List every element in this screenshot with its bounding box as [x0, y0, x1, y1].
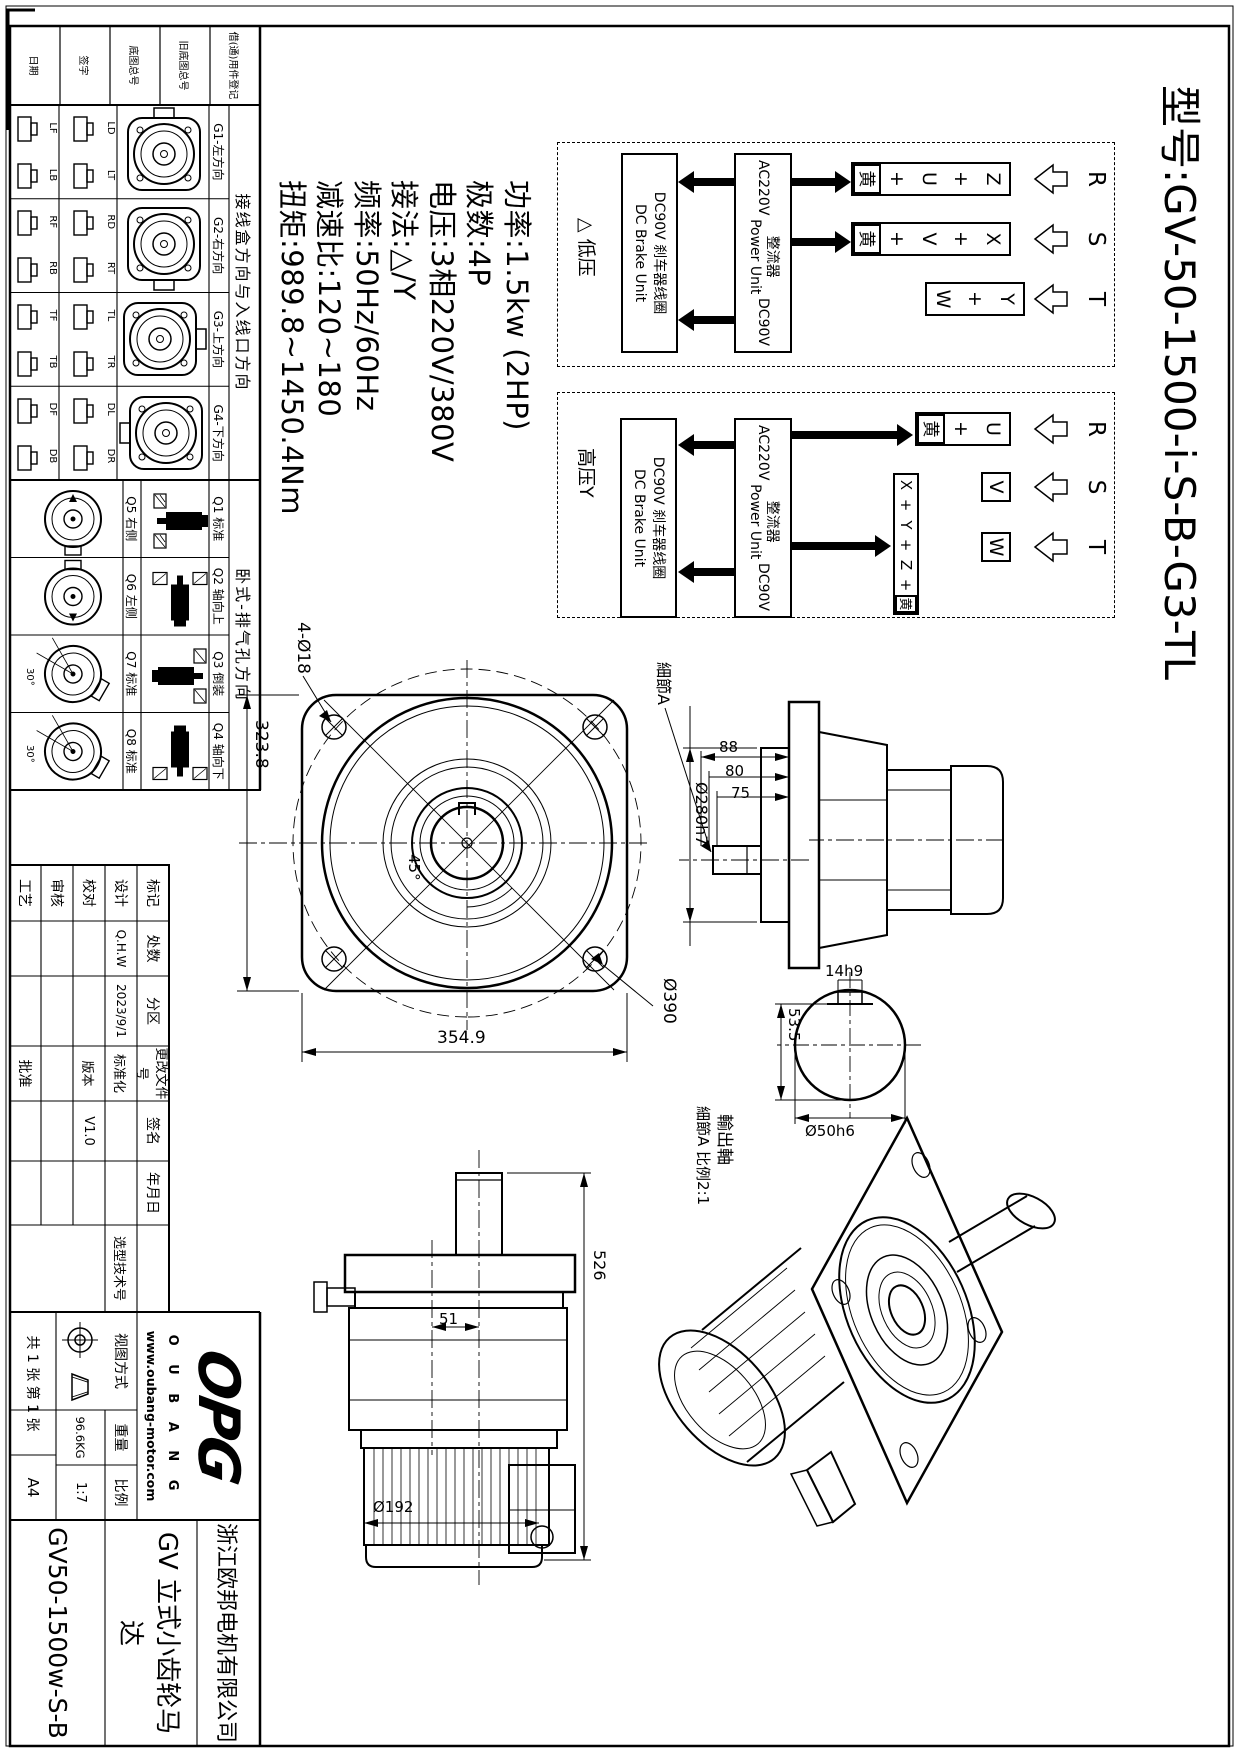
scale-label: 比例: [105, 1465, 137, 1520]
paper-size: A4: [10, 1455, 56, 1520]
q4-label: Q4 轴向下: [209, 713, 229, 791]
phase-t: T: [1083, 532, 1109, 562]
rev-h-mark: 标记: [137, 865, 169, 921]
g1-sub-a: LD: [105, 105, 116, 151]
g3-label: G3-上方向: [209, 293, 229, 387]
row-audit: 审核: [41, 865, 73, 921]
spec-poles: 极数:4P: [460, 180, 498, 515]
g4-motor-icon: [118, 387, 208, 479]
weight-value: 96.6KG: [56, 1410, 105, 1465]
spec-power: 功率:1.5kw (2HP): [498, 180, 536, 515]
g3-sub-b: TR: [105, 339, 116, 385]
q6-label: Q6 左侧: [123, 558, 141, 636]
reg-row-borrow: 借(通)用件登记: [210, 26, 260, 105]
rectifier-dc: DC90V: [755, 298, 771, 346]
terminal-strip-yw: Y+ W: [925, 282, 1025, 316]
rectifier-box-high: AC220V 整流器 Power Unit DC90V: [734, 418, 792, 618]
terminal-strip-u: U+ 黄: [915, 412, 1011, 446]
hmount-motor-icons: [141, 480, 209, 790]
version-value: V1.0: [73, 1101, 105, 1161]
dim-88: 88: [719, 738, 738, 756]
dim-14h9: 14h9: [825, 962, 863, 980]
g2-motor-icon: [118, 200, 208, 292]
g2-sub-a: RD: [105, 199, 116, 245]
mini-motor-icons-row1: [59, 105, 101, 480]
junction-bump-right: [154, 280, 174, 290]
q1-label: Q1 标准: [209, 480, 229, 558]
g1-sub-d: LB: [47, 152, 58, 198]
q3-label: Q3 倒装: [209, 635, 229, 713]
junction-table-header: 接线盒方向与入线口方向: [229, 105, 260, 480]
view-mode-label: 视图方式: [105, 1312, 137, 1410]
terminal-strip-xyz: X+ Y+ Z+ 黄: [893, 473, 919, 615]
q8-label: Q8 标准: [123, 713, 141, 791]
g2-sub-d: RB: [47, 245, 58, 291]
rev-h-date: 年月日: [137, 1161, 169, 1225]
dim-50h6: Ø50h6: [805, 1122, 855, 1140]
weight-label: 重量: [105, 1410, 137, 1465]
g1-sub-c: LF: [47, 105, 58, 151]
shaft-detail-view: [775, 972, 921, 1124]
drawing-number: GV50-1500w-S-B: [10, 1520, 105, 1746]
scale-value: 1:7: [56, 1465, 105, 1520]
spec-voltage: 电压:3相220V/380V: [423, 180, 461, 515]
reg-row-old-no: 旧底图总号: [160, 26, 210, 105]
phase-s: S: [1083, 472, 1109, 502]
dim-53-5: 53.5: [785, 1008, 803, 1041]
sheet-count: 共 1 张 第 1 张: [10, 1312, 56, 1455]
rectifier-box-low: AC220V 整流器 Power Unit DC90V: [734, 153, 792, 353]
brake-en: DC Brake Unit: [631, 204, 650, 302]
dim-45deg: 45°: [405, 854, 423, 881]
spec-torque: 扭矩:989.8~1450.4Nm: [273, 180, 311, 515]
g3-motor-icon: [118, 293, 208, 385]
q5-label: Q5 右侧: [123, 480, 141, 558]
q7-label: Q7 标准: [123, 635, 141, 713]
spec-wiring: 接法:△/Y: [385, 180, 423, 515]
exhaust-table-header: 卧式-排气孔方向: [229, 480, 260, 790]
rectifier-ac: AC220V: [755, 425, 771, 480]
drawing-sheet: 型号:GV-50-1500-i-S-B-G3-TL R S T R S T Z+…: [0, 0, 1239, 1752]
junction-bump-bottom: [120, 423, 130, 443]
brand-name: O U B A N G: [163, 1312, 183, 1520]
q7-angle: 30°: [24, 668, 35, 686]
g2-sub-b: RT: [105, 245, 116, 291]
sel-tech-no-label: 选型技术号: [105, 1225, 137, 1312]
dim-bolt-circle: Ø390: [659, 978, 679, 1024]
g4-sub-d: DB: [47, 433, 58, 479]
horizontal-view: [314, 1150, 591, 1585]
design-date: 2023/9/1: [105, 976, 137, 1046]
dim-80: 80: [725, 762, 744, 780]
motor-fins: [374, 1448, 536, 1545]
row-version: 版本: [73, 1046, 105, 1101]
dim-arrowheads: [243, 695, 627, 1056]
g4-sub-c: DF: [47, 386, 58, 432]
phase-t: T: [1083, 284, 1109, 314]
g4-sub-b: DR: [105, 433, 116, 479]
rev-h-zone: 分区: [137, 976, 169, 1046]
detail-a-scale-label: 細節A 比例2:1: [693, 1106, 714, 1205]
terminal-w: W: [981, 532, 1011, 562]
terminal-strip-zu: Z+ U+ 黄: [851, 162, 1011, 196]
output-shaft-label: 輸出軸: [714, 1114, 739, 1165]
high-voltage-label: 高压Y: [574, 448, 601, 498]
rev-h-docno: 更改文件号: [137, 1046, 169, 1101]
brake-unit-box-low: DC90V 刹车器线圈 DC Brake Unit: [621, 153, 678, 353]
side-view: [665, 702, 1004, 968]
spec-block: 功率:1.5kw (2HP) 极数:4P 电压:3相220V/380V 接法:△…: [273, 180, 536, 515]
terminal-v: V: [981, 472, 1011, 502]
junction-bump-left: [154, 108, 174, 118]
junction-bump-top: [196, 329, 206, 349]
mini-motor-icons-row2: [9, 105, 43, 480]
row-standardize: 标准化: [105, 1046, 137, 1101]
brake-cn: DC90V 刹车器线圈: [650, 192, 669, 314]
landscape-stage: 型号:GV-50-1500-i-S-B-G3-TL R S T R S T Z+…: [0, 0, 1239, 1752]
spec-ratio: 减速比:120~180: [310, 180, 348, 515]
reg-row-date: 日期: [10, 26, 60, 105]
brand-website: www.oubang-motor.com: [141, 1312, 163, 1520]
round-motor-icons: [10, 480, 123, 790]
rectifier-cn: 整流器: [763, 484, 780, 559]
g4-label: G4-下方向: [209, 386, 229, 480]
brake-en: DC Brake Unit: [630, 469, 649, 567]
g1-motor-icon: [118, 106, 208, 198]
row-design: 设计: [105, 865, 137, 921]
g2-label: G2-右方向: [209, 199, 229, 293]
dim-526: 526: [590, 1250, 609, 1281]
brake-cn: DC90V 刹车器线圈: [649, 457, 668, 579]
row-process: 工艺: [10, 865, 41, 921]
phase-r: R: [1083, 164, 1109, 194]
drawing-model-title: 型号:GV-50-1500-i-S-B-G3-TL: [1152, 85, 1213, 680]
q2-label: Q2 轴向上: [209, 558, 229, 636]
rectifier-en: Power Unit: [746, 484, 763, 559]
q8-angle: 30°: [24, 745, 35, 763]
g3-sub-a: TL: [105, 293, 116, 339]
front-view: [237, 660, 653, 1062]
g1-sub-b: LT: [105, 152, 116, 198]
dim-354-9: 354.9: [437, 1028, 486, 1048]
g4-sub-a: DL: [105, 386, 116, 432]
detail-a-callout: 細節A: [653, 662, 677, 705]
rectifier-en: Power Unit: [746, 219, 763, 294]
dim-75: 75: [731, 784, 750, 802]
reg-row-sign: 签字: [60, 26, 110, 105]
rectifier-ac: AC220V: [755, 160, 771, 215]
phase-s: S: [1083, 224, 1109, 254]
phase-r: R: [1083, 414, 1109, 444]
g3-sub-c: TF: [47, 293, 58, 339]
g3-sub-d: TB: [47, 339, 58, 385]
brand-logo: OPG: [185, 1306, 251, 1526]
row-check: 校对: [73, 865, 105, 921]
dim-51: 51: [439, 1310, 458, 1328]
reg-row-base-no: 底图总号: [110, 26, 160, 105]
dim-192: Ø192: [373, 1498, 413, 1516]
rev-h-count: 处数: [137, 921, 169, 976]
rev-h-sign: 签名: [137, 1101, 169, 1161]
rectifier-cn: 整流器: [763, 219, 780, 294]
designer-sign: Q.H.W: [105, 921, 137, 976]
spec-frequency: 频率:50Hz/60Hz: [348, 180, 386, 515]
brake-unit-box-high: DC90V 刹车器线圈 DC Brake Unit: [620, 418, 677, 618]
g1-label: G1-左方向: [209, 105, 229, 199]
dim-bolt-holes: 4-Ø18: [293, 622, 313, 674]
low-voltage-label: △ 低压: [574, 218, 601, 277]
dim-280h7: Ø280h7: [692, 782, 711, 845]
terminal-strip-xv: X+ V+ 黄: [851, 222, 1011, 256]
row-approve: 批准: [10, 1046, 41, 1101]
projection-symbols: [59, 1318, 101, 1404]
g2-sub-c: RF: [47, 199, 58, 245]
rectifier-dc: DC90V: [755, 563, 771, 611]
company-name: 浙江欧邦电机有限公司: [197, 1520, 260, 1746]
product-title: GV 立式小齿轮马达: [105, 1520, 197, 1746]
